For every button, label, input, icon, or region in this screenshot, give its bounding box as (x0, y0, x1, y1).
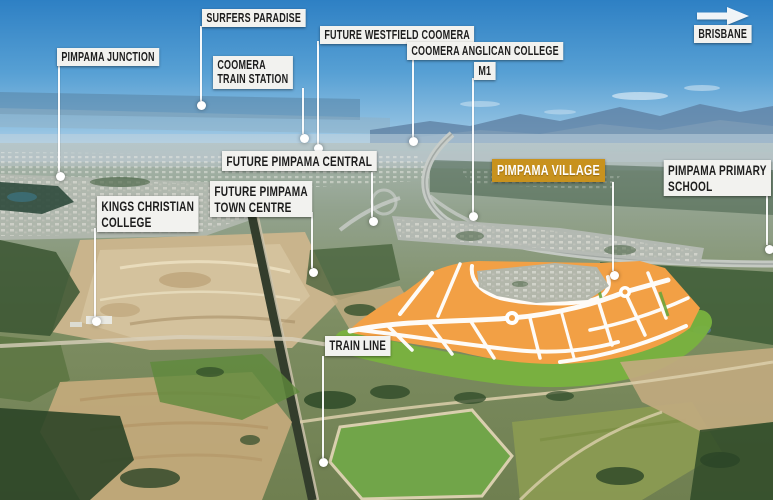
leader-line (766, 196, 768, 245)
label-pimpama-primary-school: PIMPAMA PRIMARY SCHOOL (664, 160, 771, 196)
leader-line (412, 58, 414, 137)
label-coomera-train-station: COOMERA TRAIN STATION (213, 56, 293, 89)
label-pimpama-junction: PIMPAMA JUNCTION (57, 48, 159, 66)
aerial-photo (0, 0, 773, 500)
map-dot (56, 172, 65, 181)
label-pimpama-village: PIMPAMA VILLAGE (492, 159, 605, 182)
map-dot (319, 458, 328, 467)
map-dot (197, 101, 206, 110)
label-future-pimpama-town-centre: FUTURE PIMPAMA TOWN CENTRE (210, 181, 312, 217)
map-dot (409, 137, 418, 146)
label-train-line: TRAIN LINE (325, 336, 390, 356)
label-m1: M1 (474, 62, 496, 80)
leader-line (58, 64, 60, 172)
label-brisbane: BRISBANE (694, 25, 751, 43)
map-dot (469, 212, 478, 221)
leader-line (371, 172, 373, 217)
map-dot (92, 317, 101, 326)
label-future-pimpama-central: FUTURE PIMPAMA CENTRAL (222, 151, 377, 171)
brisbane-arrow-icon (697, 7, 749, 25)
leader-line (322, 356, 324, 458)
map-dot (369, 217, 378, 226)
leader-line (472, 78, 474, 212)
leader-line (311, 212, 313, 268)
leader-line (612, 182, 614, 271)
leader-line (317, 41, 319, 144)
aerial-map: SURFERS PARADISE FUTURE WESTFIELD COOMER… (0, 0, 773, 500)
landscape (0, 134, 773, 500)
map-dot (300, 134, 309, 143)
leader-line (94, 228, 96, 317)
map-dot (765, 245, 773, 254)
label-coomera-anglican-college: COOMERA ANGLICAN COLLEGE (407, 42, 563, 60)
leader-line (302, 88, 304, 134)
map-dot (610, 271, 619, 280)
leader-line (200, 26, 202, 101)
label-kings-christian-college: KINGS CHRISTIAN COLLEGE (97, 196, 198, 232)
label-surfers-paradise: SURFERS PARADISE (202, 9, 305, 27)
map-dot (309, 268, 318, 277)
